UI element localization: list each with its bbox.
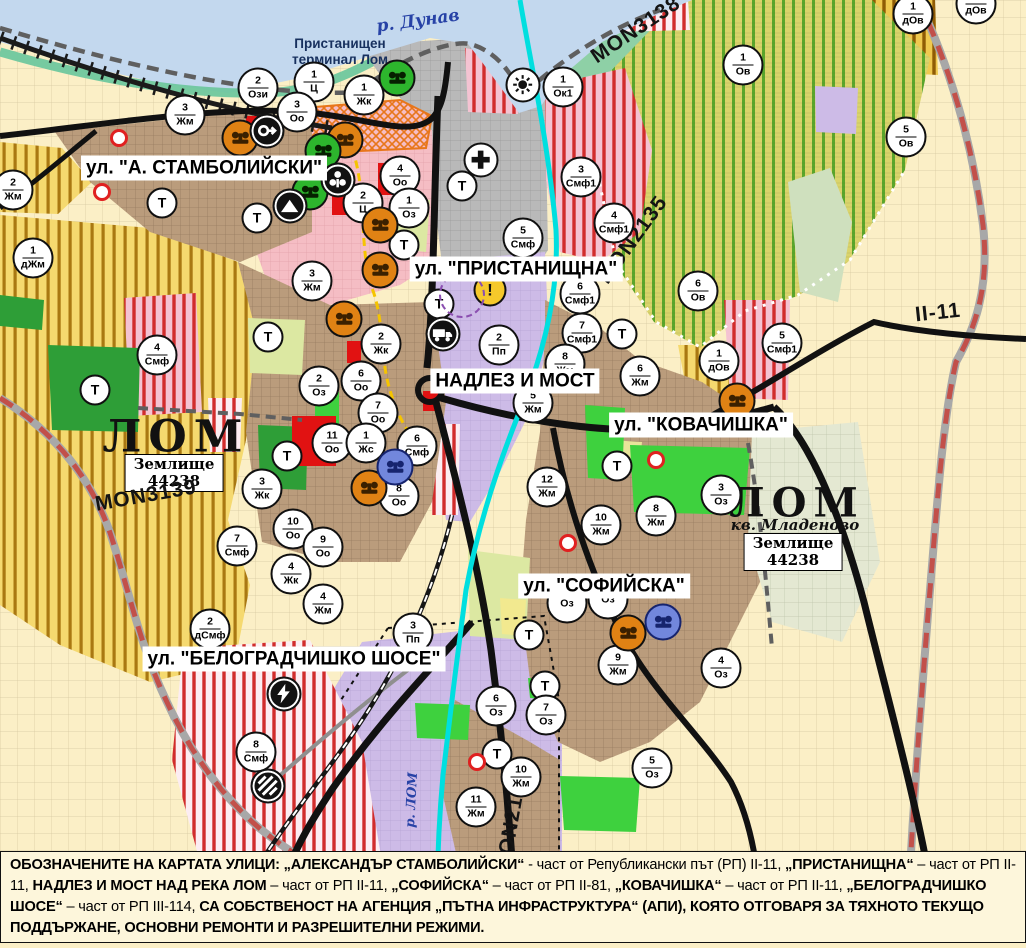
zone-marker: 3Жм [165, 95, 206, 136]
terrain-marker-t: Т [242, 203, 273, 234]
circle-arrow-icon [250, 114, 285, 149]
zone-marker: 6Ов [678, 271, 719, 312]
monument-orange-icon [362, 207, 399, 244]
zone-marker: 2Пп [479, 325, 520, 366]
river-danube-label: р. Дунав [375, 5, 461, 36]
zone-marker: 5Смф1 [762, 323, 803, 364]
caption-segment: – част от РП II-11, [266, 878, 391, 894]
zone-marker: 12Жм [527, 467, 568, 508]
zone-marker: 5Смф [503, 218, 544, 259]
road-ref-label: MON3138 [587, 0, 686, 69]
zone-marker: 4Жм [303, 584, 344, 625]
zone-marker: 5Оз [632, 748, 673, 789]
zone-marker: 8Жм [636, 496, 677, 537]
zone-marker: 1дОв [893, 0, 934, 35]
red-dot-icon [93, 183, 111, 201]
red-dot-icon [110, 129, 128, 147]
zone-marker: 2дСмф [190, 609, 231, 650]
zone-marker: 3Жм [292, 261, 333, 302]
zone-marker: 6Жм [620, 356, 661, 397]
monument-orange-icon [610, 615, 647, 652]
road-ref-label: II-11 [914, 299, 962, 328]
red-dot-icon [559, 534, 577, 552]
landplot-left-line1: Землище [134, 455, 215, 473]
caption-segment: – част от РП II-81, [489, 878, 615, 894]
zoning-map-page: { "colors": { "water": "#C3D8EE", "shore… [0, 0, 1026, 943]
zone-marker: 1Ок1 [543, 67, 584, 108]
zone-marker: 4Жк [271, 554, 312, 595]
street-label: НАДЛЕЗ И МОСТ [430, 369, 599, 394]
caption-segment: „КОВАЧИШКА“ [615, 878, 722, 894]
red-dot-icon [468, 753, 486, 771]
port-terminal-line1: Пристанищен [294, 36, 385, 51]
caption-segment: „СОФИЙСКА“ [391, 878, 489, 894]
caption-text: ОБОЗНАЧЕНИТЕ НА КАРТАТА УЛИЦИ: „АЛЕКСАНД… [10, 857, 1016, 936]
terrain-marker-t: Т [253, 322, 284, 353]
zone-marker: 11Жм [456, 787, 497, 828]
zone-marker: 3Оз [701, 475, 742, 516]
caption-segment: „ПРИСТАНИЩНА“ [785, 857, 913, 873]
red-dot-icon [647, 451, 665, 469]
terrain-marker-t: Т [147, 188, 178, 219]
zone-marker: 2Ози [238, 68, 279, 109]
caption-segment: – част от РП II-11, [721, 878, 846, 894]
monument-blue-icon [377, 449, 414, 486]
monument-orange-icon [326, 301, 363, 338]
terrain-marker-t: Т [272, 441, 303, 472]
zone-marker: 10Жм [581, 505, 622, 546]
zone-marker: 4Смф [137, 335, 178, 376]
zone-marker: 2Жм [0, 170, 34, 211]
cross-icon [464, 143, 499, 178]
zone-marker: 1дЖм [13, 238, 54, 279]
monument-orange-icon [362, 252, 399, 289]
landplot-right-line1: Землище [753, 534, 834, 552]
terrain-marker-t: Т [514, 620, 545, 651]
zone-marker: 8Смф [236, 732, 277, 773]
zone-marker: 4Оз [701, 648, 742, 689]
monument-green-icon [379, 60, 416, 97]
river-lom-label: р. ЛОМ [403, 772, 421, 828]
zone-marker: 6Оз [476, 686, 517, 727]
district-name: кв. Младеново [731, 516, 860, 534]
zone-marker: 5Ов [886, 117, 927, 158]
map-overlay: р. Дунав Пристанищен терминал Лом ЛОМ Зе… [0, 0, 1026, 943]
zone-marker: 7Смф [217, 526, 258, 567]
caption-box: ОБОЗНАЧЕНИТЕ НА КАРТАТА УЛИЦИ: „АЛЕКСАНД… [0, 851, 1026, 943]
zone-marker: 7Оз [526, 695, 567, 736]
lightning-icon [267, 677, 302, 712]
landplot-right-line2: 44238 [767, 551, 819, 569]
zone-marker: 3Жк [242, 469, 283, 510]
zone-marker: 10Жм [501, 757, 542, 798]
zone-marker: 1дОв [699, 341, 740, 382]
landplot-right: Землище 44238 [744, 533, 843, 571]
terrain-marker-t: Т [602, 451, 633, 482]
mountain-icon [273, 189, 308, 224]
truck-icon [426, 317, 461, 352]
zone-marker: 1Ов [723, 45, 764, 86]
zone-marker: 2Оз [299, 366, 340, 407]
zone-marker: 3Смф1 [561, 157, 602, 198]
zone-marker: 9Оо [303, 527, 344, 568]
zone-marker: 1дОв [956, 0, 997, 25]
street-label: ул. "БЕЛОГРАДЧИШКО ШОСЕ" [143, 647, 446, 672]
railway-crossing-icon [251, 769, 286, 804]
street-label: ул. "ПРИСТАНИЩНА" [410, 257, 623, 282]
caption-segment: – част от РП III-114, [63, 899, 200, 915]
zone-marker: 2Жк [361, 324, 402, 365]
caption-segment: - част от Републикански път (РП) II-11, [524, 857, 785, 873]
terrain-marker-t: Т [607, 319, 638, 350]
sun-icon [506, 68, 541, 103]
street-label: ул. "КОВАЧИШКА" [609, 413, 793, 438]
zone-marker: 4Смф1 [594, 203, 635, 244]
caption-segment: ОБОЗНАЧЕНИТЕ НА КАРТАТА УЛИЦИ: „АЛЕКСАНД… [10, 857, 524, 873]
caption-segment: НАДЛЕЗ И МОСТ НАД РЕКА ЛОМ [32, 878, 266, 894]
street-label: ул. "СОФИЙСКА" [518, 574, 690, 599]
street-label: ул. "А. СТАМБОЛИЙСКИ" [81, 156, 327, 181]
terrain-marker-t: Т [80, 375, 111, 406]
monument-blue-icon [645, 604, 682, 641]
